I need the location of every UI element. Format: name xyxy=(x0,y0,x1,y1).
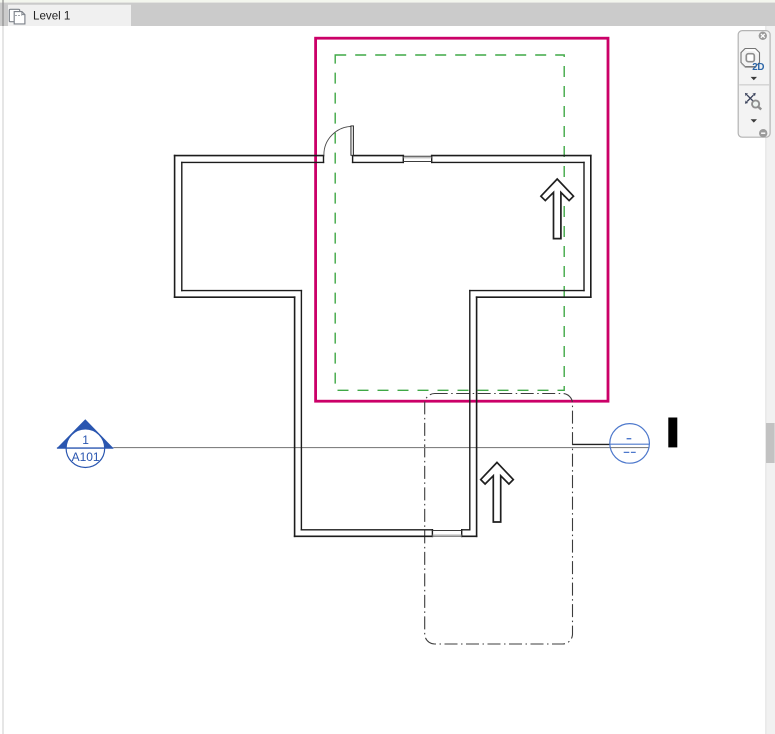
svg-text:2D: 2D xyxy=(752,62,764,73)
svg-text:1: 1 xyxy=(82,433,89,447)
svg-text:A101: A101 xyxy=(72,450,100,464)
svg-text:Level 1: Level 1 xyxy=(33,10,70,23)
